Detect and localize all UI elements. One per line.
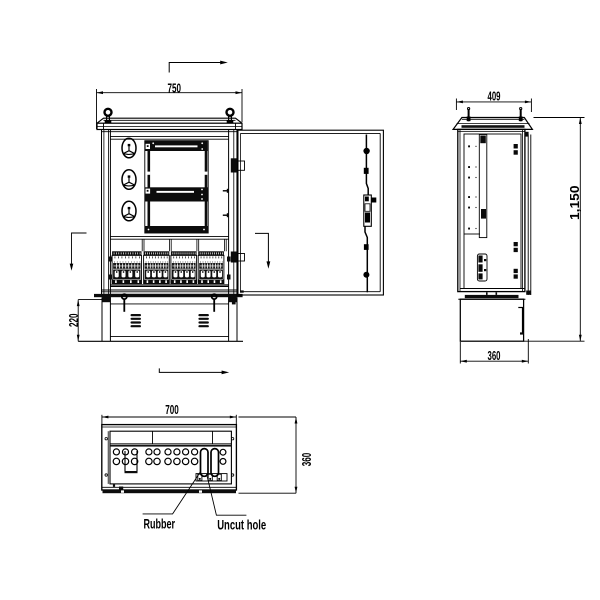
svg-text:220: 220 [66,314,81,328]
svg-text:1,150: 1,150 [567,186,582,221]
svg-text:Uncut hole: Uncut hole [217,517,266,533]
svg-text:360: 360 [488,349,501,363]
svg-text:700: 700 [165,402,179,417]
svg-text:409: 409 [488,90,501,104]
svg-text:750: 750 [168,81,182,96]
svg-text:Rubber: Rubber [144,516,176,532]
svg-text:360: 360 [299,453,314,467]
